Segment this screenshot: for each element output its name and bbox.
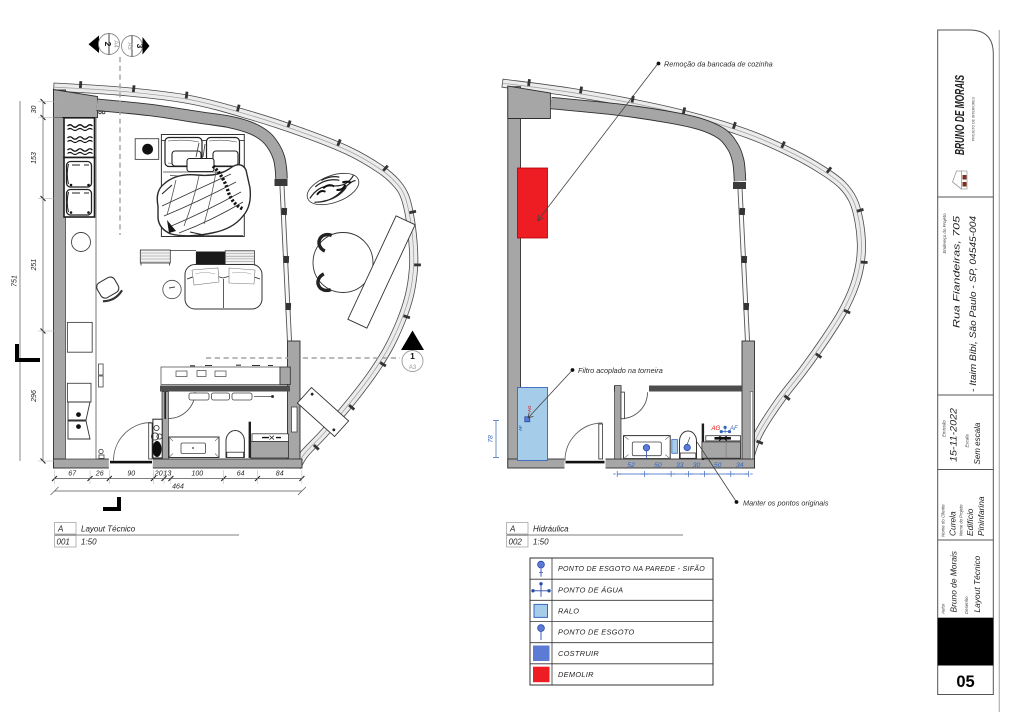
svg-text:251: 251 — [31, 259, 38, 272]
svg-text:Nome do Cliente: Nome do Cliente — [941, 504, 946, 537]
svg-text:30: 30 — [693, 462, 701, 469]
svg-text:PONTO DE ÁGUA: PONTO DE ÁGUA — [558, 585, 623, 594]
svg-text:26: 26 — [95, 471, 104, 478]
svg-text:296: 296 — [31, 390, 38, 403]
svg-text:Filtro acoplado na torneira: Filtro acoplado na torneira — [578, 366, 663, 375]
svg-text:Pininfarina: Pininfarina — [976, 496, 986, 536]
svg-text:Rua Fiandeiras, 705: Rua Fiandeiras, 705 — [952, 215, 962, 328]
svg-text:RALO: RALO — [558, 607, 579, 616]
svg-text:20: 20 — [154, 471, 163, 478]
svg-text:PROJETO DE INTERIORES: PROJETO DE INTERIORES — [971, 97, 976, 141]
svg-text:COSTRUIR: COSTRUIR — [558, 649, 599, 658]
svg-text:Autor: Autor — [941, 603, 946, 615]
svg-text:Escala: Escala — [965, 434, 970, 448]
svg-text:AG: AG — [527, 405, 532, 412]
svg-text:84: 84 — [276, 471, 284, 478]
svg-text:PONTO DE ESGOTO: PONTO DE ESGOTO — [558, 628, 635, 637]
svg-text:1: 1 — [410, 351, 415, 361]
svg-text:30: 30 — [31, 106, 38, 114]
svg-text:Endereço do Projeto: Endereço do Projeto — [942, 213, 947, 254]
svg-text:153: 153 — [31, 152, 38, 164]
svg-text:PONTO DE ESGOTO NA PAREDE - SI: PONTO DE ESGOTO NA PAREDE - SIFÃO — [558, 564, 705, 573]
svg-text:A: A — [509, 525, 515, 534]
svg-text:1:50: 1:50 — [533, 537, 549, 546]
svg-text:34: 34 — [736, 462, 744, 469]
svg-text:DEMOLIR: DEMOLIR — [558, 670, 594, 679]
svg-text:Curela: Curela — [948, 511, 958, 536]
svg-text:A5: A5 — [126, 42, 132, 50]
svg-text:67: 67 — [68, 471, 77, 478]
svg-text:Bruno de Morais: Bruno de Morais — [949, 550, 959, 612]
svg-text:100: 100 — [191, 471, 203, 478]
svg-text:52: 52 — [627, 462, 635, 469]
svg-text:751: 751 — [12, 275, 19, 287]
svg-text:78: 78 — [488, 435, 495, 443]
svg-text:Layout Técnico: Layout Técnico — [81, 525, 136, 534]
svg-text:Sem escala: Sem escala — [973, 422, 982, 464]
svg-text:13: 13 — [164, 471, 172, 478]
svg-text:15-11-2022: 15-11-2022 — [949, 408, 959, 462]
svg-text:2: 2 — [103, 42, 113, 47]
svg-text:- Itaim Bibi, São Paulo - SP,: - Itaim Bibi, São Paulo - SP, 04545-004 — [968, 216, 978, 392]
svg-text:Desenho: Desenho — [964, 596, 969, 614]
svg-text:A4: A4 — [112, 40, 118, 48]
svg-text:Emissão: Emissão — [942, 420, 947, 437]
svg-text:BRUNO DE MORAIS: BRUNO DE MORAIS — [953, 75, 967, 155]
svg-text:001: 001 — [57, 537, 70, 546]
svg-text:A3: A3 — [409, 365, 417, 371]
svg-text:3: 3 — [135, 44, 145, 49]
svg-text:50: 50 — [654, 462, 662, 469]
svg-text:Remoção da bancada de cozinha: Remoção da bancada de cozinha — [664, 60, 773, 69]
svg-text:Edifício: Edifício — [965, 508, 975, 536]
svg-text:A: A — [57, 525, 63, 534]
svg-text:AG: AG — [711, 426, 721, 432]
svg-text:05: 05 — [956, 673, 974, 691]
svg-text:Manter os pontos originais: Manter os pontos originais — [743, 499, 829, 508]
svg-text:002: 002 — [509, 537, 523, 546]
svg-text:33: 33 — [676, 462, 684, 469]
svg-text:1:50: 1:50 — [81, 537, 97, 546]
svg-text:90: 90 — [127, 471, 135, 478]
svg-text:Layout Técnico: Layout Técnico — [972, 555, 982, 612]
svg-text:64: 64 — [237, 471, 245, 478]
svg-text:Nome do Projeto: Nome do Projeto — [959, 504, 964, 536]
svg-text:AF: AF — [518, 425, 523, 431]
svg-text:Hidráulica: Hidráulica — [533, 525, 569, 534]
svg-text:464: 464 — [172, 484, 184, 491]
svg-text:50: 50 — [714, 462, 722, 469]
